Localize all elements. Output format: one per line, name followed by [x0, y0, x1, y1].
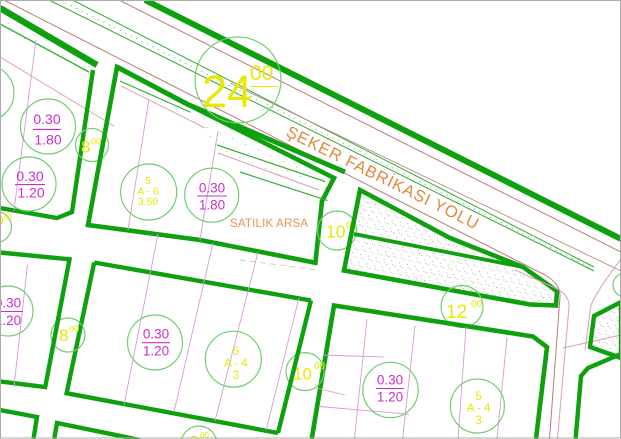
svg-text:0.30: 0.30	[0, 296, 21, 311]
svg-text:5: 5	[475, 391, 481, 403]
svg-text:00: 00	[69, 324, 79, 334]
svg-text:0.30: 0.30	[377, 373, 403, 388]
svg-text:0.30: 0.30	[199, 181, 225, 196]
svg-text:5: 5	[233, 346, 239, 358]
svg-text:1.20: 1.20	[143, 344, 169, 359]
svg-text:00: 00	[4, 213, 12, 222]
svg-text:3: 3	[475, 415, 481, 427]
svg-text:0.30: 0.30	[143, 327, 169, 342]
svg-text:24: 24	[202, 66, 252, 117]
svg-text:00: 00	[471, 299, 483, 310]
svg-text:8: 8	[81, 138, 90, 157]
svg-text:1.20: 1.20	[377, 390, 403, 405]
svg-text:00: 00	[250, 62, 273, 85]
svg-text:1.80: 1.80	[199, 198, 225, 213]
svg-text:A - 4: A - 4	[467, 403, 491, 415]
svg-text:1.80: 1.80	[34, 132, 61, 148]
svg-text:A - 4: A - 4	[224, 358, 248, 370]
svg-text:8: 8	[59, 326, 68, 345]
svg-text:3: 3	[233, 370, 239, 382]
svg-text:10: 10	[326, 222, 346, 242]
svg-text:SATILIK ARSA: SATILIK ARSA	[230, 218, 308, 230]
svg-text:00: 00	[91, 137, 101, 147]
svg-text:00: 00	[314, 361, 326, 372]
svg-text:0.30: 0.30	[33, 111, 60, 127]
svg-text:3.50: 3.50	[138, 196, 159, 208]
svg-text:1.20: 1.20	[0, 313, 21, 328]
svg-text:12: 12	[446, 302, 467, 323]
svg-text:1.20: 1.20	[17, 185, 44, 201]
svg-text:0.30: 0.30	[16, 168, 43, 184]
